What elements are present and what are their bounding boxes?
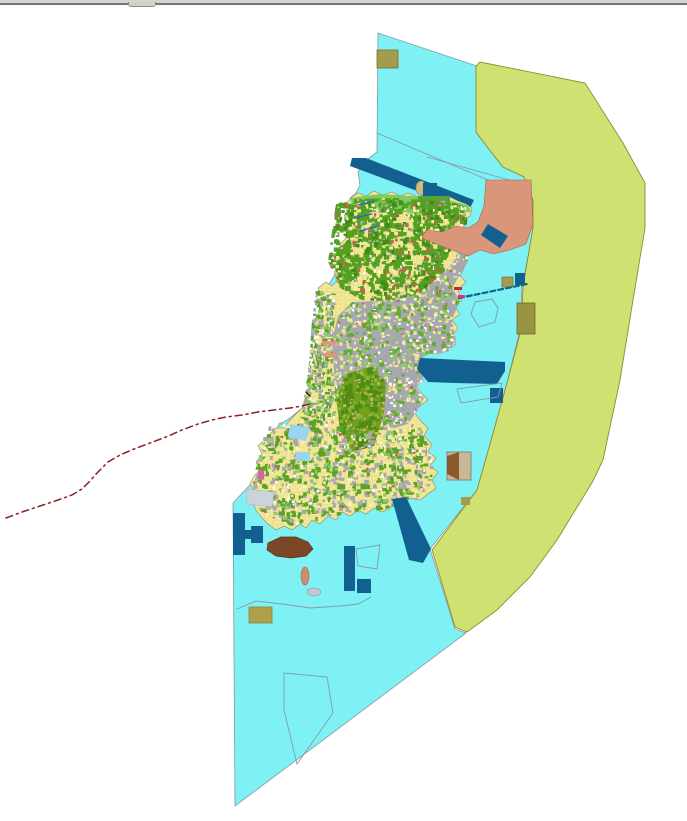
landuse-south-mixed-speckle: [298, 500, 301, 503]
landuse-central-urban-speckle: [435, 301, 437, 303]
landuse-north-farmland-speckle: [366, 279, 370, 282]
landuse-central-urban-speckle: [396, 418, 399, 419]
landuse-olive-woodland-speckle: [378, 384, 380, 386]
landuse-north-farmland-speckle: [333, 254, 335, 256]
landuse-north-farmland-speckle: [343, 231, 346, 233]
landuse-south-mixed-speckle: [294, 522, 295, 523]
landuse-olive-woodland-speckle: [342, 415, 345, 419]
landuse-west-strip-speckle: [309, 356, 312, 359]
landuse-west-strip-speckle: [306, 396, 309, 399]
landuse-south-mixed-speckle: [350, 496, 355, 501]
landuse-central-urban-speckle: [370, 329, 371, 331]
landuse-central-urban-speckle: [445, 311, 448, 315]
landuse-south-mixed-speckle: [367, 489, 370, 491]
landuse-south-mixed-speckle: [339, 466, 343, 469]
landuse-north-farmland-speckle: [430, 245, 433, 249]
landuse-central-urban-speckle: [407, 324, 409, 326]
landuse-south-mixed-speckle: [412, 436, 415, 440]
landuse-olive-woodland-speckle: [366, 376, 370, 380]
landuse-west-strip-speckle: [326, 296, 329, 299]
landuse-south-mixed-speckle: [346, 460, 348, 462]
landuse-north-farmland-speckle: [395, 200, 398, 201]
landuse-south-mixed-speckle: [327, 495, 330, 497]
landuse-south-mixed-speckle: [416, 490, 419, 493]
landuse-north-farmland-speckle: [405, 286, 408, 288]
landuse-central-urban-speckle: [440, 326, 442, 327]
landuse-south-mixed-speckle: [295, 503, 296, 506]
landuse-north-farmland-speckle: [370, 210, 373, 212]
landuse-central-urban-speckle: [415, 357, 418, 360]
landuse-central-urban-speckle: [360, 340, 365, 345]
landuse-central-urban-speckle: [347, 309, 350, 311]
landuse-south-mixed-speckle: [310, 508, 312, 510]
landuse-north-farmland-speckle: [338, 247, 339, 248]
landuse-south-mixed-speckle: [344, 495, 347, 498]
landuse-olive-woodland-speckle: [372, 412, 373, 413]
landuse-central-urban-speckle: [384, 363, 387, 364]
landuse-north-farmland-speckle: [391, 207, 392, 209]
landuse-central-urban-speckle: [406, 378, 409, 379]
landuse-south-mixed-speckle: [308, 449, 311, 452]
landuse-central-urban-speckle: [406, 371, 407, 372]
landuse-south-mixed-speckle: [413, 457, 417, 460]
landuse-west-strip-speckle: [315, 303, 319, 305]
landuse-south-mixed-speckle: [418, 477, 420, 479]
landuse-north-farmland-speckle: [386, 232, 389, 236]
landuse-central-urban-speckle: [384, 313, 388, 316]
landuse-north-farmland-speckle: [413, 252, 416, 255]
landuse-south-mixed-speckle: [423, 469, 425, 472]
landuse-central-urban-speckle: [345, 372, 347, 374]
landuse-central-urban-speckle: [392, 396, 393, 398]
landuse-south-mixed-speckle: [305, 498, 308, 502]
landuse-north-farmland-speckle: [372, 217, 374, 221]
landuse-south-mixed-speckle: [282, 502, 285, 504]
landuse-north-farmland-speckle: [394, 257, 396, 258]
navy-pier-vertical-sw: [233, 513, 245, 555]
landuse-north-farmland-speckle: [385, 234, 387, 236]
landuse-north-farmland-speckle: [374, 291, 379, 294]
landuse-south-mixed-speckle: [378, 490, 380, 492]
landuse-west-strip-speckle: [327, 413, 331, 417]
landuse-central-urban-speckle: [439, 300, 443, 302]
landuse-north-farmland-speckle: [396, 235, 397, 236]
landuse-west-strip-speckle: [326, 303, 330, 306]
landuse-north-farmland-speckle: [360, 235, 364, 237]
landuse-south-mixed-speckle: [273, 517, 276, 518]
landuse-central-urban-speckle: [340, 317, 342, 321]
landuse-central-urban-speckle: [409, 361, 411, 364]
landuse-olive-woodland-speckle: [347, 408, 350, 411]
landuse-west-strip-speckle: [324, 405, 326, 408]
landuse-north-farmland-speckle: [354, 207, 357, 210]
landuse-north-farmland-speckle: [385, 223, 390, 228]
landuse-north-farmland-speckle: [394, 232, 398, 235]
landuse-south-mixed-speckle: [323, 500, 326, 502]
landuse-north-farmland-speckle: [354, 279, 355, 281]
navy-rect-ne: [423, 183, 437, 196]
landuse-south-mixed-speckle: [323, 445, 326, 447]
landuse-central-urban-speckle: [373, 301, 376, 302]
landuse-west-strip-speckle: [329, 401, 332, 405]
landuse-south-mixed-speckle: [264, 511, 267, 513]
landuse-central-urban-speckle: [370, 320, 372, 324]
landuse-central-urban-speckle: [443, 325, 447, 330]
landuse-central-urban-speckle: [399, 387, 402, 390]
landuse-north-farmland-speckle: [453, 205, 456, 207]
landuse-south-mixed-speckle: [309, 421, 313, 426]
landuse-north-farmland-speckle: [405, 271, 408, 274]
landuse-central-urban-speckle: [374, 353, 377, 355]
landuse-north-farmland-speckle: [335, 233, 337, 234]
landuse-central-urban-speckle: [375, 317, 377, 320]
landuse-north-farmland-speckle: [378, 206, 379, 209]
landuse-west-strip-speckle: [330, 369, 332, 373]
landuse-south-mixed-speckle: [413, 485, 414, 486]
landuse-south-mixed-speckle: [333, 495, 336, 499]
landuse-olive-woodland-speckle: [361, 373, 365, 376]
landuse-north-farmland-speckle: [358, 268, 360, 272]
landuse-north-farmland-speckle: [404, 251, 408, 255]
landuse-central-urban-speckle: [381, 333, 385, 335]
landuse-west-strip-speckle: [326, 408, 330, 411]
landuse-central-urban-speckle: [388, 323, 390, 325]
landuse-north-farmland-speckle: [374, 209, 377, 210]
landuse-south-mixed-speckle: [337, 486, 341, 489]
landuse-central-urban-speckle: [385, 418, 387, 419]
landuse-west-strip-speckle: [329, 294, 331, 296]
landuse-central-urban-speckle: [375, 303, 376, 306]
pane-divider[interactable]: [0, 0, 687, 5]
landuse-south-mixed-speckle: [333, 481, 336, 485]
landuse-north-farmland-speckle: [350, 238, 353, 241]
landuse-north-farmland-speckle: [439, 220, 443, 224]
landuse-central-urban-speckle: [353, 348, 357, 351]
landuse-north-farmland-speckle: [338, 207, 339, 208]
landuse-north-farmland-speckle: [339, 285, 343, 288]
landuse-central-urban-speckle: [362, 303, 364, 304]
landuse-south-mixed-speckle: [287, 440, 290, 443]
landuse-north-farmland-speckle: [373, 289, 376, 290]
landuse-south-mixed-speckle: [280, 436, 283, 438]
landuse-north-farmland-speckle: [397, 209, 403, 214]
landuse-south-mixed-speckle: [283, 473, 286, 477]
landuse-north-farmland-speckle: [461, 224, 464, 227]
landuse-central-urban-speckle: [383, 331, 385, 332]
landuse-central-urban-speckle: [401, 334, 404, 335]
landuse-central-urban-speckle: [335, 336, 339, 338]
landuse-central-urban-speckle: [447, 278, 449, 282]
landuse-south-mixed-speckle: [329, 457, 331, 460]
landuse-central-urban-speckle: [392, 416, 393, 418]
landuse-central-urban-speckle: [379, 323, 381, 325]
landuse-central-urban-speckle: [434, 312, 437, 314]
landuse-north-farmland-speckle: [437, 251, 439, 252]
landuse-south-mixed-speckle: [284, 478, 289, 481]
landuse-central-urban-speckle: [386, 341, 389, 343]
landuse-west-strip-speckle: [325, 392, 330, 394]
landuse-north-farmland-speckle: [345, 286, 351, 291]
landuse-north-farmland-speckle: [401, 258, 405, 260]
landuse-central-urban-speckle: [402, 409, 404, 410]
landuse-central-urban-speckle: [356, 355, 359, 358]
landuse-north-farmland-speckle: [414, 264, 416, 265]
khaki-dot-east: [461, 497, 470, 505]
landuse-north-farmland-speckle: [373, 237, 378, 239]
landuse-north-farmland-speckle: [379, 236, 381, 240]
landuse-north-farmland-speckle: [412, 287, 416, 290]
landuse-south-mixed-speckle: [353, 466, 355, 468]
khaki-square-east: [502, 277, 513, 287]
landuse-central-urban-speckle: [394, 325, 396, 330]
landuse-olive-woodland-speckle: [350, 406, 351, 408]
landuse-west-strip-speckle: [313, 351, 316, 354]
landuse-north-farmland-speckle: [381, 289, 383, 291]
landuse-west-strip-speckle: [308, 371, 311, 373]
landuse-south-mixed-speckle: [295, 507, 298, 511]
landuse-central-urban-speckle: [395, 365, 398, 367]
landuse-south-mixed-speckle: [295, 442, 299, 447]
landuse-south-mixed-speckle: [348, 479, 351, 480]
landuse-central-urban-speckle: [398, 323, 401, 325]
landuse-south-mixed-speckle: [368, 450, 372, 453]
landuse-north-farmland-speckle: [342, 262, 346, 265]
landuse-south-mixed-speckle: [324, 428, 327, 432]
landuse-west-strip-speckle: [331, 331, 332, 334]
landuse-central-urban-speckle: [339, 353, 342, 356]
landuse-south-mixed-speckle: [352, 454, 354, 457]
landuse-north-farmland-speckle: [350, 288, 351, 290]
landuse-west-strip-speckle: [310, 408, 313, 411]
pane-divider-handle[interactable]: [128, 2, 156, 7]
landuse-north-farmland-speckle: [338, 249, 341, 253]
landuse-west-strip-speckle: [325, 361, 329, 363]
landuse-central-urban-speckle: [452, 300, 455, 304]
landuse-central-urban-speckle: [402, 342, 404, 344]
landuse-north-farmland-speckle: [348, 282, 351, 285]
landuse-central-urban-speckle: [405, 394, 408, 397]
landuse-south-mixed-speckle: [287, 499, 289, 502]
landuse-north-farmland-speckle: [393, 292, 395, 295]
landuse-central-urban-speckle: [414, 363, 417, 366]
landuse-south-mixed-speckle: [263, 455, 264, 457]
landuse-south-mixed-speckle: [388, 453, 391, 455]
landuse-south-mixed-speckle: [282, 457, 286, 460]
landuse-north-farmland-speckle: [398, 282, 399, 284]
landuse-central-urban-speckle: [408, 353, 411, 357]
landuse-central-urban-speckle: [364, 361, 367, 364]
landuse-north-farmland-speckle: [427, 271, 430, 274]
landuse-south-mixed-speckle: [398, 434, 399, 436]
landuse-north-farmland-speckle: [394, 284, 398, 287]
landuse-north-farmland-speckle: [439, 269, 445, 272]
landuse-central-urban-speckle: [417, 383, 419, 384]
landuse-south-mixed-speckle: [351, 475, 354, 479]
landuse-central-urban-speckle: [371, 310, 375, 312]
landuse-central-urban-speckle: [429, 326, 431, 331]
landuse-south-mixed-speckle: [328, 439, 331, 442]
landuse-central-urban-speckle: [363, 332, 366, 334]
landuse-south-mixed-speckle: [313, 443, 316, 446]
landuse-south-mixed-speckle: [299, 448, 301, 450]
landuse-south-mixed-speckle: [275, 495, 278, 499]
landuse-north-farmland-speckle: [405, 237, 408, 240]
landuse-central-urban-speckle: [399, 360, 401, 362]
landuse-north-farmland-speckle: [373, 264, 376, 269]
landuse-south-mixed-speckle: [363, 501, 365, 503]
landuse-central-urban-speckle: [411, 381, 413, 383]
landuse-south-mixed-speckle: [350, 464, 353, 468]
landuse-north-farmland-speckle: [403, 245, 406, 249]
landuse-north-farmland-speckle: [360, 222, 362, 225]
landuse-olive-woodland-speckle: [347, 417, 349, 418]
landuse-central-urban-speckle: [386, 394, 389, 397]
landuse-central-urban-speckle: [344, 369, 347, 371]
landuse-north-farmland-speckle: [393, 270, 395, 274]
landuse-north-farmland-speckle: [401, 292, 402, 293]
landuse-south-mixed-speckle: [357, 484, 360, 487]
landuse-central-urban-speckle: [403, 371, 404, 372]
landuse-west-strip-speckle: [332, 300, 335, 303]
landuse-central-urban-speckle: [395, 313, 399, 316]
landuse-south-mixed-speckle: [317, 490, 320, 493]
landuse-north-farmland-speckle: [341, 248, 343, 249]
landuse-central-urban-speckle: [417, 349, 421, 352]
landuse-north-farmland-speckle: [384, 253, 386, 256]
landuse-central-urban-speckle: [385, 370, 389, 373]
landuse-central-urban-speckle: [428, 305, 429, 307]
landuse-south-mixed-speckle: [420, 449, 422, 452]
landuse-south-mixed-speckle: [369, 461, 374, 463]
landuse-central-urban-speckle: [392, 336, 396, 339]
landuse-south-mixed-speckle: [302, 510, 307, 514]
landuse-south-mixed-speckle: [288, 484, 291, 486]
landuse-south-mixed-speckle: [415, 470, 417, 474]
landuse-north-farmland-speckle: [444, 249, 448, 252]
landuse-north-farmland-speckle: [331, 235, 334, 238]
landuse-central-urban-speckle: [415, 354, 418, 357]
landuse-olive-woodland-speckle: [363, 429, 366, 431]
landuse-south-mixed-speckle: [312, 469, 315, 471]
landuse-central-urban-speckle: [401, 401, 406, 404]
landuse-central-urban-speckle: [396, 342, 397, 344]
landuse-south-mixed-speckle: [339, 444, 343, 448]
landuse-south-mixed-speckle: [307, 491, 309, 495]
landuse-north-farmland-speckle: [334, 239, 337, 243]
landuse-central-urban-speckle: [436, 298, 440, 299]
landuse-olive-woodland-speckle: [345, 420, 347, 423]
landuse-south-mixed-speckle: [380, 489, 383, 491]
landuse-north-farmland-speckle: [355, 223, 357, 226]
landuse-south-mixed-speckle: [424, 441, 426, 446]
landuse-west-strip-speckle: [336, 386, 338, 388]
landuse-central-urban-speckle: [345, 314, 348, 316]
landuse-north-farmland-speckle: [354, 225, 355, 227]
landuse-south-mixed-speckle: [310, 491, 314, 493]
landuse-central-urban-speckle: [338, 382, 341, 384]
landuse-south-mixed-speckle: [367, 455, 370, 457]
landuse-central-urban-speckle: [397, 300, 400, 302]
landuse-central-urban-speckle: [402, 353, 404, 356]
landuse-central-urban-speckle: [387, 311, 391, 313]
landuse-south-mixed-speckle: [370, 464, 373, 467]
landuse-central-urban-speckle: [334, 374, 338, 375]
landuse-south-mixed-speckle: [395, 454, 397, 456]
landuse-central-urban-speckle: [393, 404, 396, 407]
landuse-central-urban-speckle: [390, 351, 393, 352]
landuse-central-urban-speckle: [413, 389, 416, 394]
landuse-central-urban-speckle: [400, 328, 405, 330]
landuse-west-strip-speckle: [329, 325, 331, 327]
landuse-north-farmland-speckle: [411, 240, 414, 243]
khaki-rect-east-large: [517, 303, 535, 334]
landuse-north-farmland-speckle: [400, 254, 403, 256]
landuse-north-farmland-speckle: [400, 272, 401, 274]
landuse-north-farmland-speckle: [399, 226, 402, 228]
landuse-south-mixed-speckle: [303, 486, 305, 488]
landuse-south-mixed-speckle: [353, 435, 356, 438]
map-canvas[interactable]: [0, 0, 687, 821]
landuse-west-strip-speckle: [315, 389, 318, 393]
landuse-south-mixed-speckle: [329, 507, 333, 511]
landuse-north-farmland-speckle: [368, 230, 371, 233]
landuse-south-mixed-speckle: [417, 439, 421, 441]
landuse-south-mixed-speckle: [421, 453, 425, 456]
landuse-west-strip-speckle: [317, 308, 320, 311]
landuse-central-urban-speckle: [343, 326, 346, 328]
landuse-central-urban-speckle: [398, 380, 401, 384]
landuse-west-strip-speckle: [314, 364, 317, 368]
landuse-north-farmland-speckle: [382, 248, 386, 253]
landuse-south-mixed-speckle: [332, 429, 335, 433]
landuse-central-urban-speckle: [447, 295, 451, 299]
landuse-north-farmland-speckle: [377, 227, 381, 229]
landuse-central-urban-speckle: [436, 351, 437, 352]
landuse-north-farmland-speckle: [389, 228, 390, 230]
landuse-north-farmland-speckle: [406, 223, 409, 227]
landuse-south-mixed-speckle: [358, 461, 360, 464]
landuse-north-farmland-speckle: [390, 274, 393, 278]
landuse-south-mixed-speckle: [362, 503, 367, 507]
landuse-olive-woodland-speckle: [367, 368, 373, 374]
landuse-south-mixed-speckle: [397, 447, 401, 449]
navy-pier-block-sw: [251, 526, 263, 543]
landuse-west-strip-speckle: [313, 329, 316, 331]
landuse-central-urban-speckle: [389, 302, 391, 305]
landuse-west-strip-speckle: [321, 375, 323, 377]
landuse-south-mixed-speckle: [273, 512, 277, 515]
landuse-south-mixed-speckle: [366, 485, 370, 489]
landuse-olive-woodland-speckle: [349, 410, 351, 412]
landuse-south-mixed-speckle: [408, 428, 411, 432]
landuse-west-strip-speckle: [318, 310, 322, 313]
landuse-north-farmland-speckle: [460, 215, 462, 218]
landuse-south-mixed-speckle: [327, 514, 331, 516]
landuse-north-farmland-speckle: [379, 209, 381, 212]
landuse-central-urban-speckle: [365, 356, 368, 358]
landuse-south-mixed-speckle: [300, 469, 305, 472]
landuse-south-mixed-speckle: [348, 455, 350, 456]
landuse-central-urban-speckle: [356, 322, 357, 324]
landuse-central-urban-speckle: [364, 350, 368, 352]
landuse-central-urban-speckle: [383, 336, 385, 337]
landuse-north-farmland-speckle: [414, 213, 416, 218]
landuse-olive-woodland-speckle: [356, 386, 359, 389]
landuse-central-urban-speckle: [378, 351, 380, 354]
navy-square-east: [515, 273, 525, 285]
landuse-north-farmland-speckle: [425, 277, 429, 281]
landuse-central-urban-speckle: [348, 349, 351, 352]
